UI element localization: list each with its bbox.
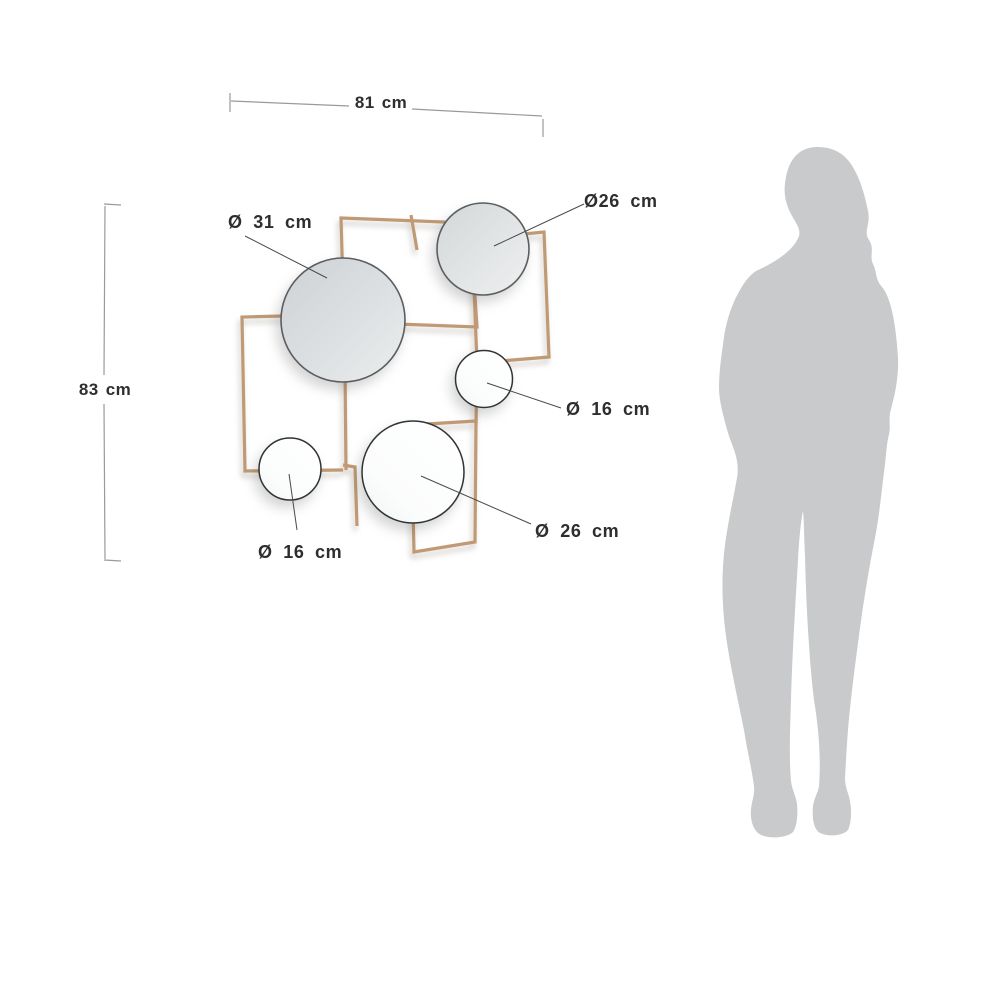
- width-dimension-label: 81 cm: [345, 93, 417, 113]
- mirror-large-circle: [281, 258, 405, 382]
- product-diagram: 81 cm 83 cm Ø 31 cm Ø26 cm Ø 16 cm Ø 26 …: [0, 0, 1000, 1000]
- height-dimension-label: 83 cm: [69, 380, 141, 400]
- leader-mirror-large: [245, 236, 327, 278]
- diagram-canvas: [0, 0, 1000, 1000]
- mirror-bottom-left-circle: [259, 438, 321, 500]
- label-mirror-bottom-left: Ø 16 cm: [258, 542, 342, 563]
- human-silhouette: [719, 147, 898, 837]
- mirror-mid-right-circle: [456, 351, 513, 408]
- label-mirror-mid-right: Ø 16 cm: [566, 399, 650, 420]
- mirror-top-right-circle: [437, 203, 529, 295]
- mirror-bottom-center-circle: [362, 421, 464, 523]
- label-mirror-top-right: Ø26 cm: [584, 191, 658, 212]
- frame-segment: [343, 465, 357, 526]
- label-mirror-large: Ø 31 cm: [228, 212, 312, 233]
- label-mirror-bottom-center: Ø 26 cm: [535, 521, 619, 542]
